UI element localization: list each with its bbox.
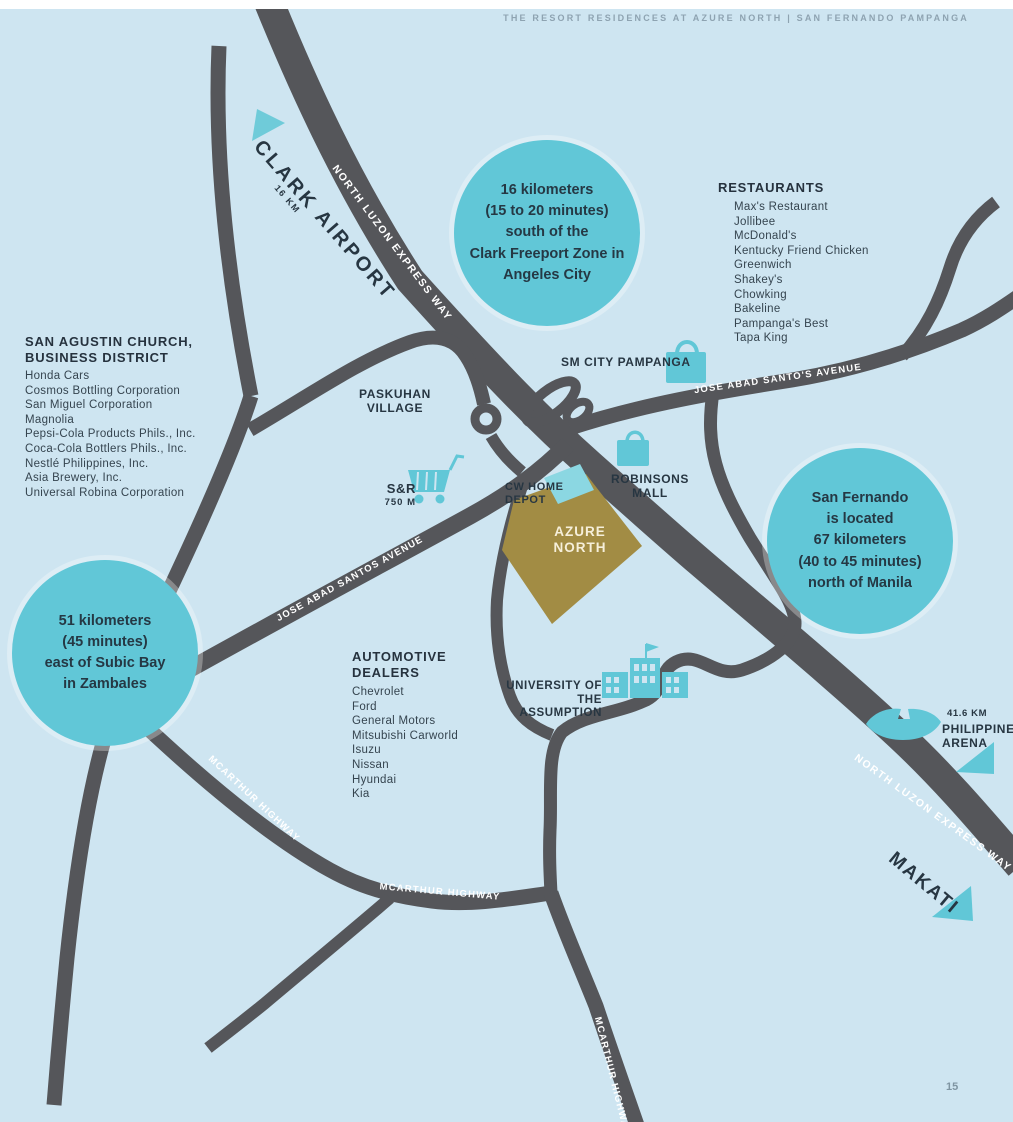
road-mcarthur-branch [208,898,390,1048]
list-item: Mitsubishi Carworld [352,729,458,744]
sr-cart-icon [408,456,464,504]
list-item: Isuzu [352,743,458,758]
road-roundabout-link [491,436,522,472]
list-item: McDonald's [734,229,869,244]
robinsons-bag-icon [617,432,649,466]
azure-north-label: AZURE NORTH [541,524,619,556]
list-item: Nestlé Philippines, Inc. [25,457,196,472]
page-number: 15 [946,1081,958,1093]
road-west-lower [54,396,251,1105]
list-item: Pampanga's Best [734,317,869,332]
list-item: Asia Brewery, Inc. [25,471,196,486]
list-item: Pepsi-Cola Products Phils., Inc. [25,427,196,442]
list-item: Coca-Cola Bottlers Phils., Inc. [25,442,196,457]
road-paskuhan [250,338,484,430]
cw-home-depot-label: CW HOME DEPOT [505,481,564,507]
university-label: UNIVERSITY OF THE ASSUMPTION [488,680,602,721]
road-west-upper [218,46,251,396]
list-item: Cosmos Bottling Corporation [25,384,196,399]
callout-san-fernando: San Fernando is located 67 kilometers (4… [767,448,953,634]
list-item: General Motors [352,714,458,729]
robinsons-label: ROBINSONS MALL [602,472,698,500]
business-district-list: Honda CarsCosmos Bottling CorporationSan… [25,369,196,500]
list-item: Tapa King [734,331,869,346]
callout-subic: 51 kilometers (45 minutes) east of Subic… [12,560,198,746]
restaurants-list: Max's RestaurantJollibeeMcDonald'sKentuc… [734,200,869,346]
sm-city-label: SM CITY PAMPANGA [561,355,691,369]
automotive-list: ChevroletFordGeneral MotorsMitsubishi Ca… [352,685,458,802]
list-item: San Miguel Corporation [25,398,196,413]
list-item: Universal Robina Corporation [25,486,196,501]
sr-label: S&R [362,481,416,496]
automotive-title: AUTOMOTIVE DEALERS [352,649,446,682]
list-item: Chowking [734,288,869,303]
philippine-arena-label: PHILIPPINE ARENA [942,722,1013,750]
list-item: Shakey's [734,273,869,288]
top-white-strip [0,0,1013,9]
road-mcarthur-vertical [551,893,638,1122]
list-item: Nissan [352,758,458,773]
list-item: Chevrolet [352,685,458,700]
list-item: Honda Cars [25,369,196,384]
map-canvas: THE RESORT RESIDENCES AT AZURE NORTH | S… [0,0,1013,1122]
page-header: THE RESORT RESIDENCES AT AZURE NORTH | S… [503,13,969,23]
list-item: Kentucky Friend Chicken [734,244,869,259]
paskuhan-label: PASKUHAN VILLAGE [345,387,445,415]
sr-distance: 750 M [362,497,416,508]
business-district-title: SAN AGUSTIN CHURCH, BUSINESS DISTRICT [25,334,193,367]
callout-clark-freeport: 16 kilometers (15 to 20 minutes) south o… [454,140,640,326]
clark-airport-arrow-icon [252,109,285,141]
road-mcarthur-diagonal [118,700,551,903]
list-item: Hyundai [352,773,458,788]
list-item: Bakeline [734,302,869,317]
university-school-icon [602,643,688,698]
list-item: Greenwich [734,258,869,273]
list-item: Ford [352,700,458,715]
list-item: Magnolia [25,413,196,428]
list-item: Max's Restaurant [734,200,869,215]
list-item: Kia [352,787,458,802]
philippine-arena-distance: 41.6 KM [947,708,987,719]
roundabout-icon [475,408,497,430]
restaurants-title: RESTAURANTS [718,180,824,196]
list-item: Jollibee [734,215,869,230]
